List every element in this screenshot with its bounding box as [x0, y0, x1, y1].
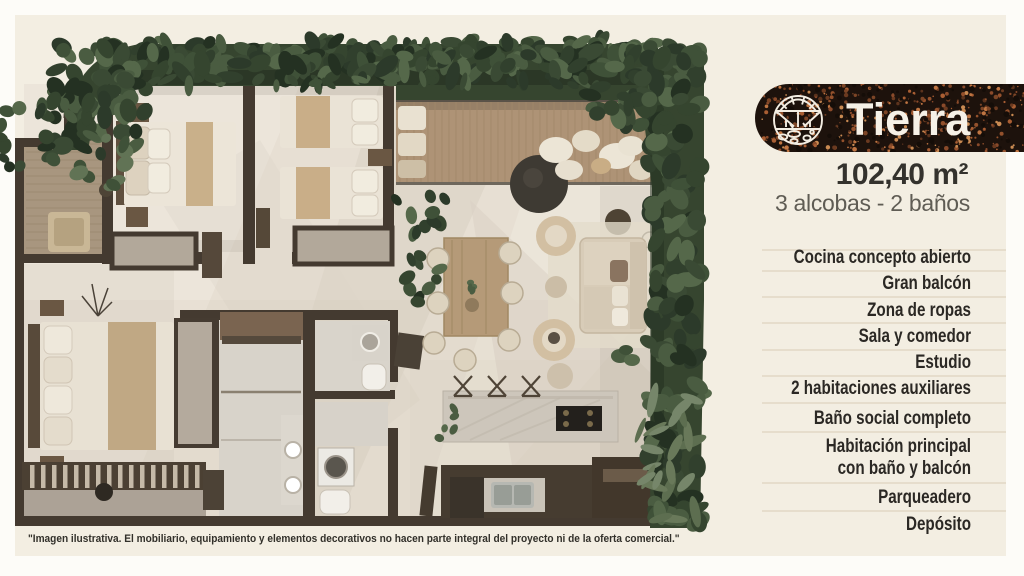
svg-text:Baño social completo: Baño social completo	[814, 406, 971, 428]
svg-text:Gran balcón: Gran balcón	[882, 271, 971, 293]
svg-text:Parqueadero: Parqueadero	[878, 485, 971, 507]
svg-text:102,40 m²: 102,40 m²	[836, 158, 969, 191]
svg-text:Tierra: Tierra	[846, 94, 971, 145]
svg-text:"Imagen ilustrativa. El mobili: "Imagen ilustrativa. El mobiliario, equi…	[28, 533, 680, 545]
svg-text:2 habitaciones auxiliares: 2 habitaciones auxiliares	[791, 376, 971, 398]
svg-text:Zona de ropas: Zona de ropas	[867, 298, 971, 320]
svg-text:Sala y comedor: Sala y comedor	[859, 324, 971, 346]
svg-text:Cocina concepto abierto: Cocina concepto abierto	[794, 245, 971, 267]
svg-text:con baño y balcón: con baño y balcón	[838, 456, 971, 478]
svg-text:Estudio: Estudio	[915, 350, 971, 372]
svg-text:Habitación principal: Habitación principal	[826, 434, 971, 456]
svg-text:3 alcobas - 2 baños: 3 alcobas - 2 baños	[775, 190, 970, 216]
svg-text:Depósito: Depósito	[906, 512, 971, 534]
